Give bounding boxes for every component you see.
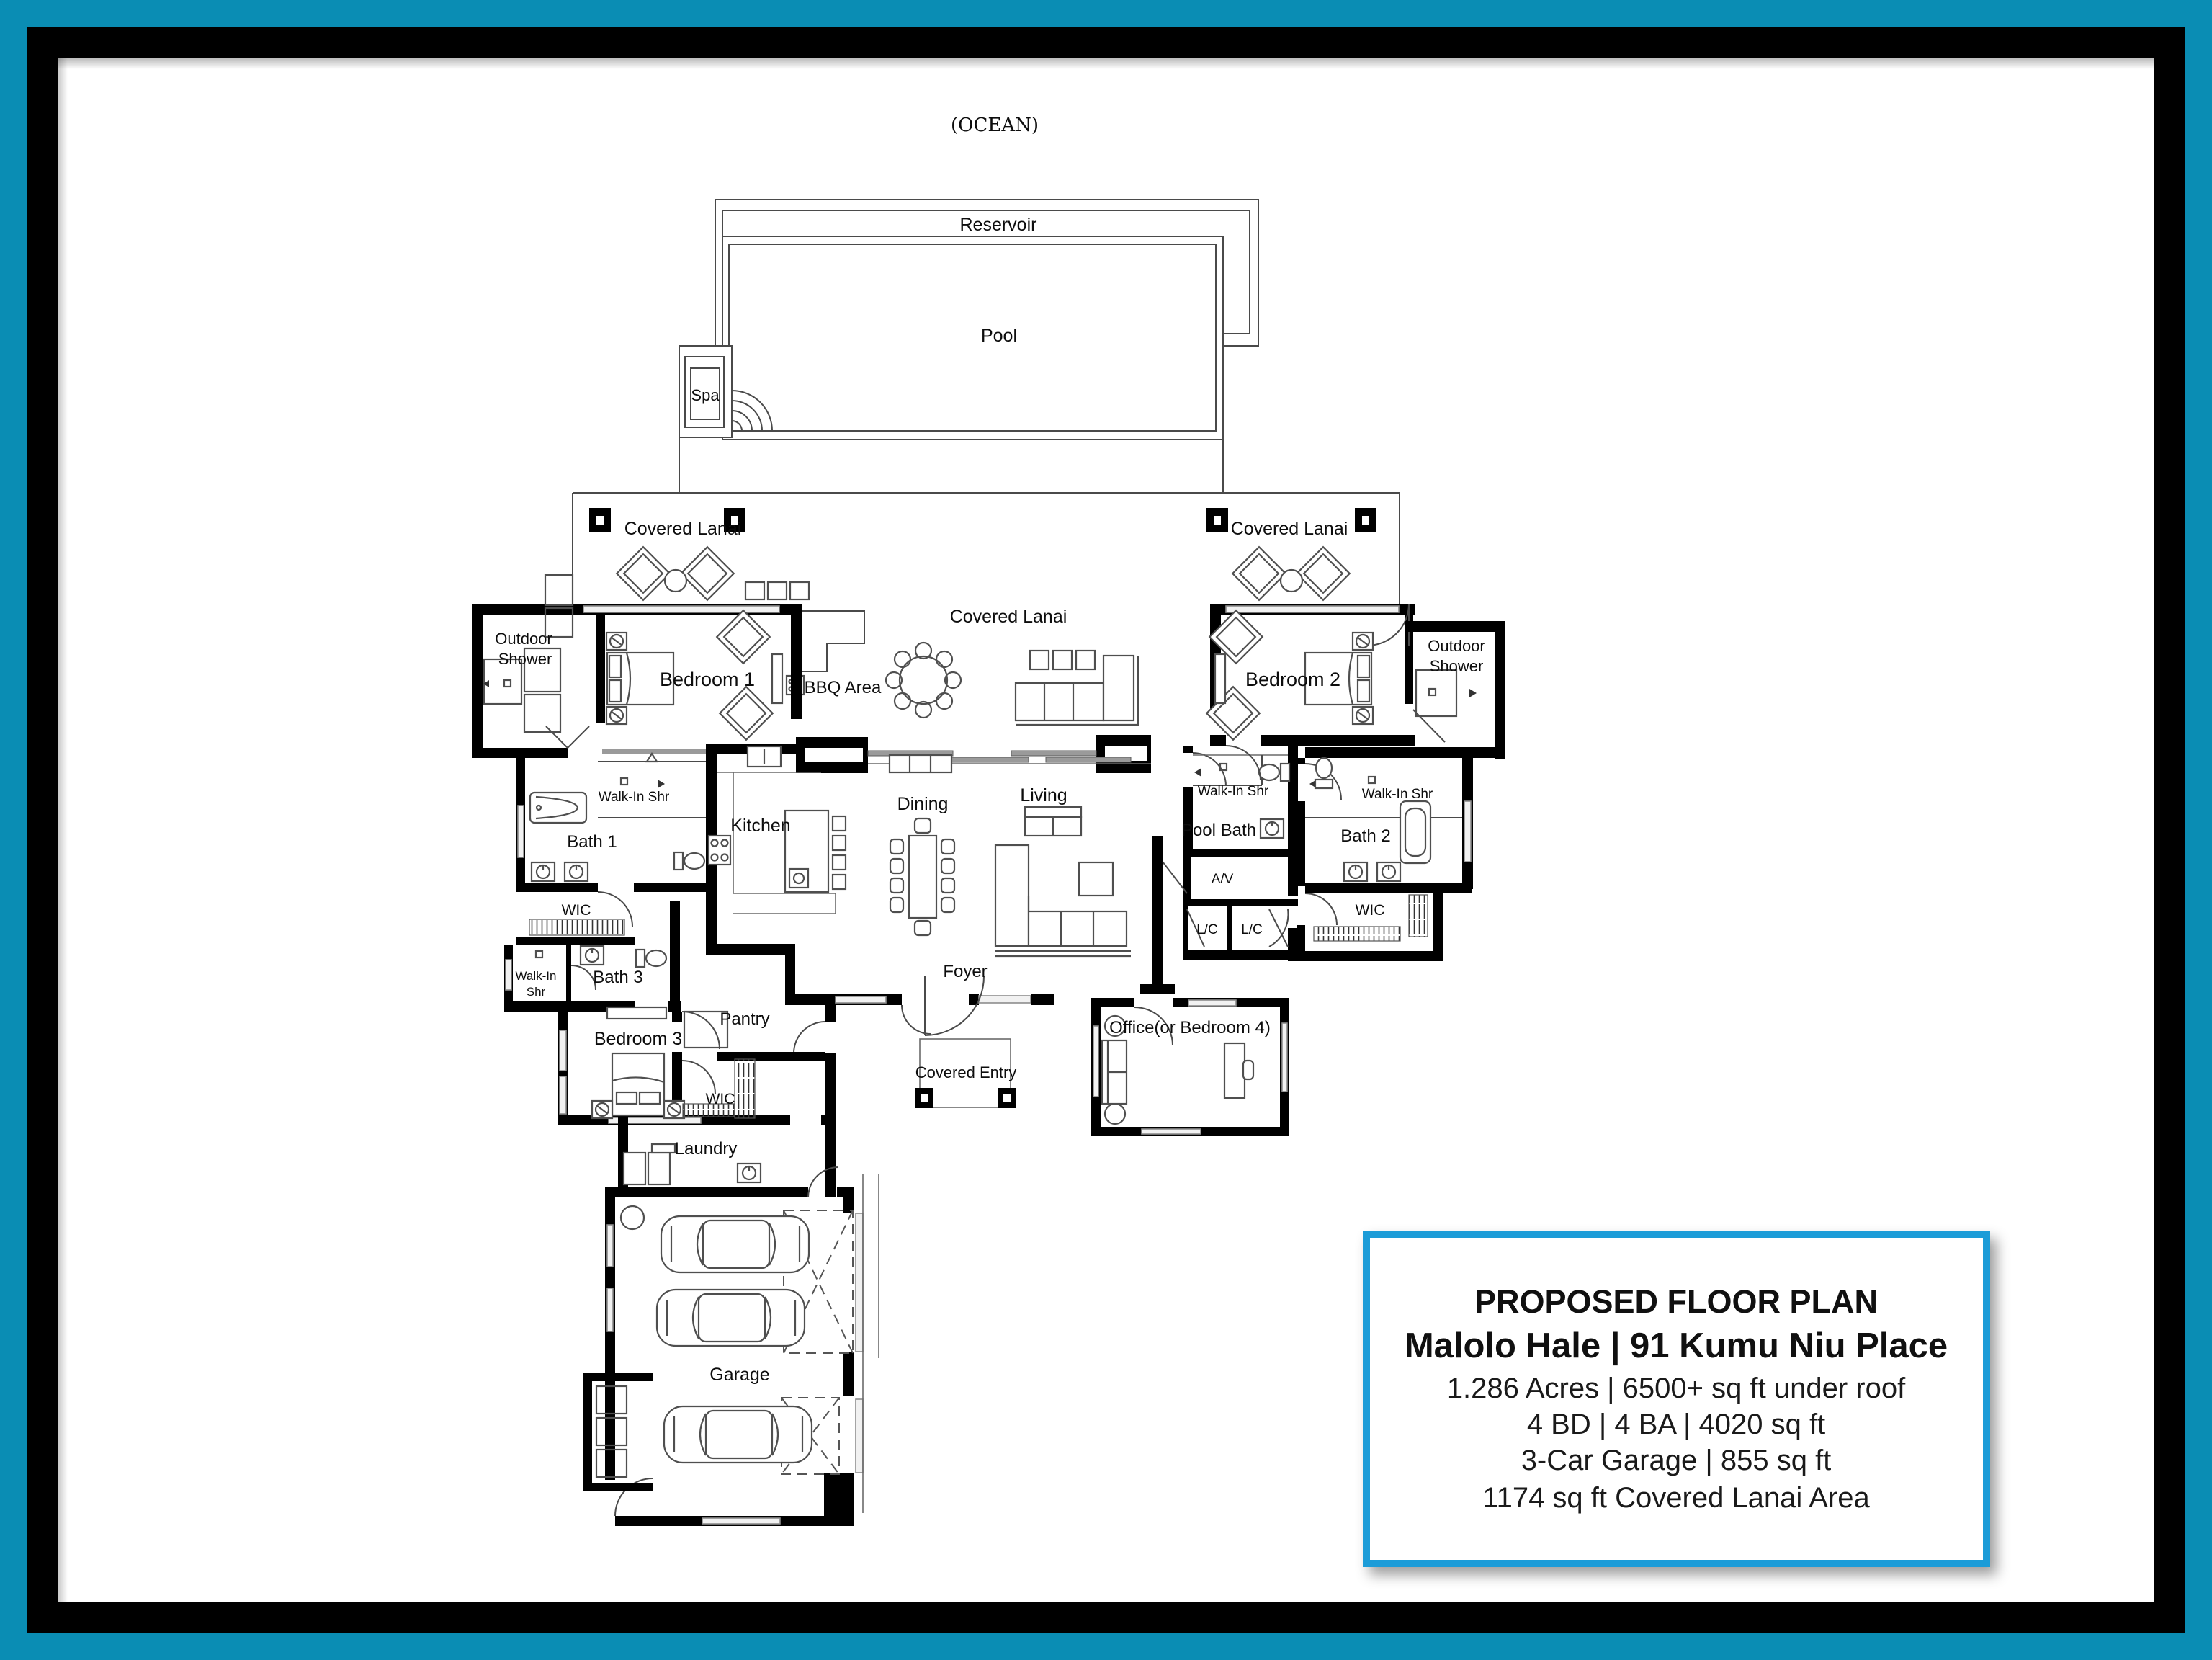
wic2-rod-horizontal [1314,927,1400,941]
label-outdoor-shower-left-1: Outdoor [495,630,552,648]
info-box: PROPOSED FLOOR PLAN Malolo Hale | 91 Kum… [1366,1234,1987,1563]
info-title: PROPOSED FLOOR PLAN [1474,1283,1878,1320]
wic2-rod-vertical [1409,895,1428,937]
label-walkin-poolbath: Walk-In Shr [1198,784,1269,799]
label-bedroom1: Bedroom 1 [660,669,755,690]
label-outdoor-shower-right-2: Shower [1430,657,1484,675]
label-walkin-bath2: Walk-In Shr [1362,787,1433,802]
label-office: Office(or Bedroom 4) [1109,1018,1271,1037]
info-line-3: 3-Car Garage | 855 sq ft [1521,1445,1832,1476]
label-wic3: WIC [706,1091,735,1107]
label-pantry: Pantry [720,1009,769,1029]
label-bedroom3: Bedroom 3 [594,1029,682,1049]
label-garage: Garage [709,1365,769,1385]
label-covered-lanai-right: Covered Lanai [1231,519,1348,539]
kitchen-island [785,811,828,892]
car-3 [664,1406,812,1463]
label-pool-bath: Pool Bath [1181,821,1256,840]
label-kitchen: Kitchen [730,816,790,836]
dining-table [909,836,936,918]
wic3-rod-vertical [735,1059,755,1118]
label-bbq-area: BBQ Area [805,678,882,697]
coffee-table [1079,862,1113,896]
floor-plan-canvas: (OCEAN) Reservoir Pool Spa Covered Lanai… [0,0,2212,1660]
label-lc2: L/C [1241,922,1263,937]
label-outdoor-shower-left-2: Shower [498,650,552,668]
label-bath1: Bath 1 [567,832,617,852]
car-1 [661,1216,809,1272]
label-covered-lanai-left: Covered Lanai [624,519,742,539]
car-2 [657,1290,805,1346]
label-laundry: Laundry [675,1139,738,1159]
label-walkin-bath3-2: Shr [527,985,546,999]
paper-shadow-top [58,58,2154,69]
label-walkin-bath3-1: Walk-In [516,969,557,983]
info-line-2: 4 BD | 4 BA | 4020 sq ft [1527,1409,1825,1440]
label-bath2: Bath 2 [1340,826,1390,846]
label-wic1: WIC [562,902,591,919]
label-covered-lanai-center: Covered Lanai [950,607,1067,627]
label-dining: Dining [897,794,949,814]
label-av: A/V [1212,872,1234,887]
label-bath3: Bath 3 [593,968,642,987]
lanai-sectional [1016,651,1138,725]
label-living: Living [1020,785,1067,806]
info-line-4: 1174 sq ft Covered Lanai Area [1482,1482,1870,1514]
wic1-rod [529,919,624,935]
office-desk [1224,1043,1245,1098]
paper-shadow-left [58,58,68,1602]
label-outdoor-shower-right-1: Outdoor [1428,637,1485,655]
label-pool: Pool [981,326,1017,346]
label-walkin-bath1: Walk-In Shr [599,790,670,805]
label-reservoir: Reservoir [960,215,1037,235]
label-wic2: WIC [1356,902,1385,919]
label-spa: Spa [691,386,720,404]
label-ocean: (OCEAN) [951,115,1039,136]
label-covered-entry: Covered Entry [915,1063,1017,1081]
label-foyer: Foyer [943,962,987,981]
label-lc1: L/C [1196,922,1218,937]
label-bedroom2: Bedroom 2 [1245,669,1340,690]
info-line-1: 1.286 Acres | 6500+ sq ft under roof [1447,1373,1906,1404]
floor-plan-page: (OCEAN) Reservoir Pool Spa Covered Lanai… [0,0,2212,1660]
info-subtitle: Malolo Hale | 91 Kumu Niu Place [1405,1326,1948,1365]
